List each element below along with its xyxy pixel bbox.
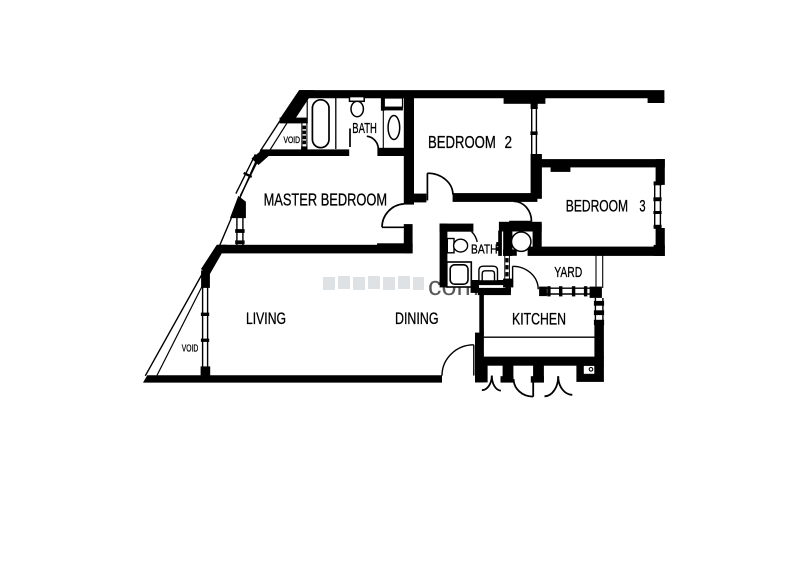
- svg-text:BEDROOM: BEDROOM: [428, 132, 496, 152]
- svg-text:DINING: DINING: [395, 310, 439, 328]
- svg-text:LIVING: LIVING: [246, 310, 286, 328]
- svg-text:BEDROOM: BEDROOM: [566, 198, 628, 216]
- svg-text:KITCHEN: KITCHEN: [512, 310, 566, 328]
- svg-text:2: 2: [505, 132, 513, 152]
- svg-text:VOID: VOID: [182, 342, 199, 354]
- svg-text:YARD: YARD: [554, 264, 582, 281]
- svg-text:3: 3: [639, 198, 645, 216]
- svg-text:VOID: VOID: [284, 135, 301, 145]
- svg-text:BATH: BATH: [352, 120, 377, 137]
- svg-text:MASTER BEDROOM: MASTER BEDROOM: [264, 189, 388, 209]
- svg-text:BATH: BATH: [471, 242, 498, 256]
